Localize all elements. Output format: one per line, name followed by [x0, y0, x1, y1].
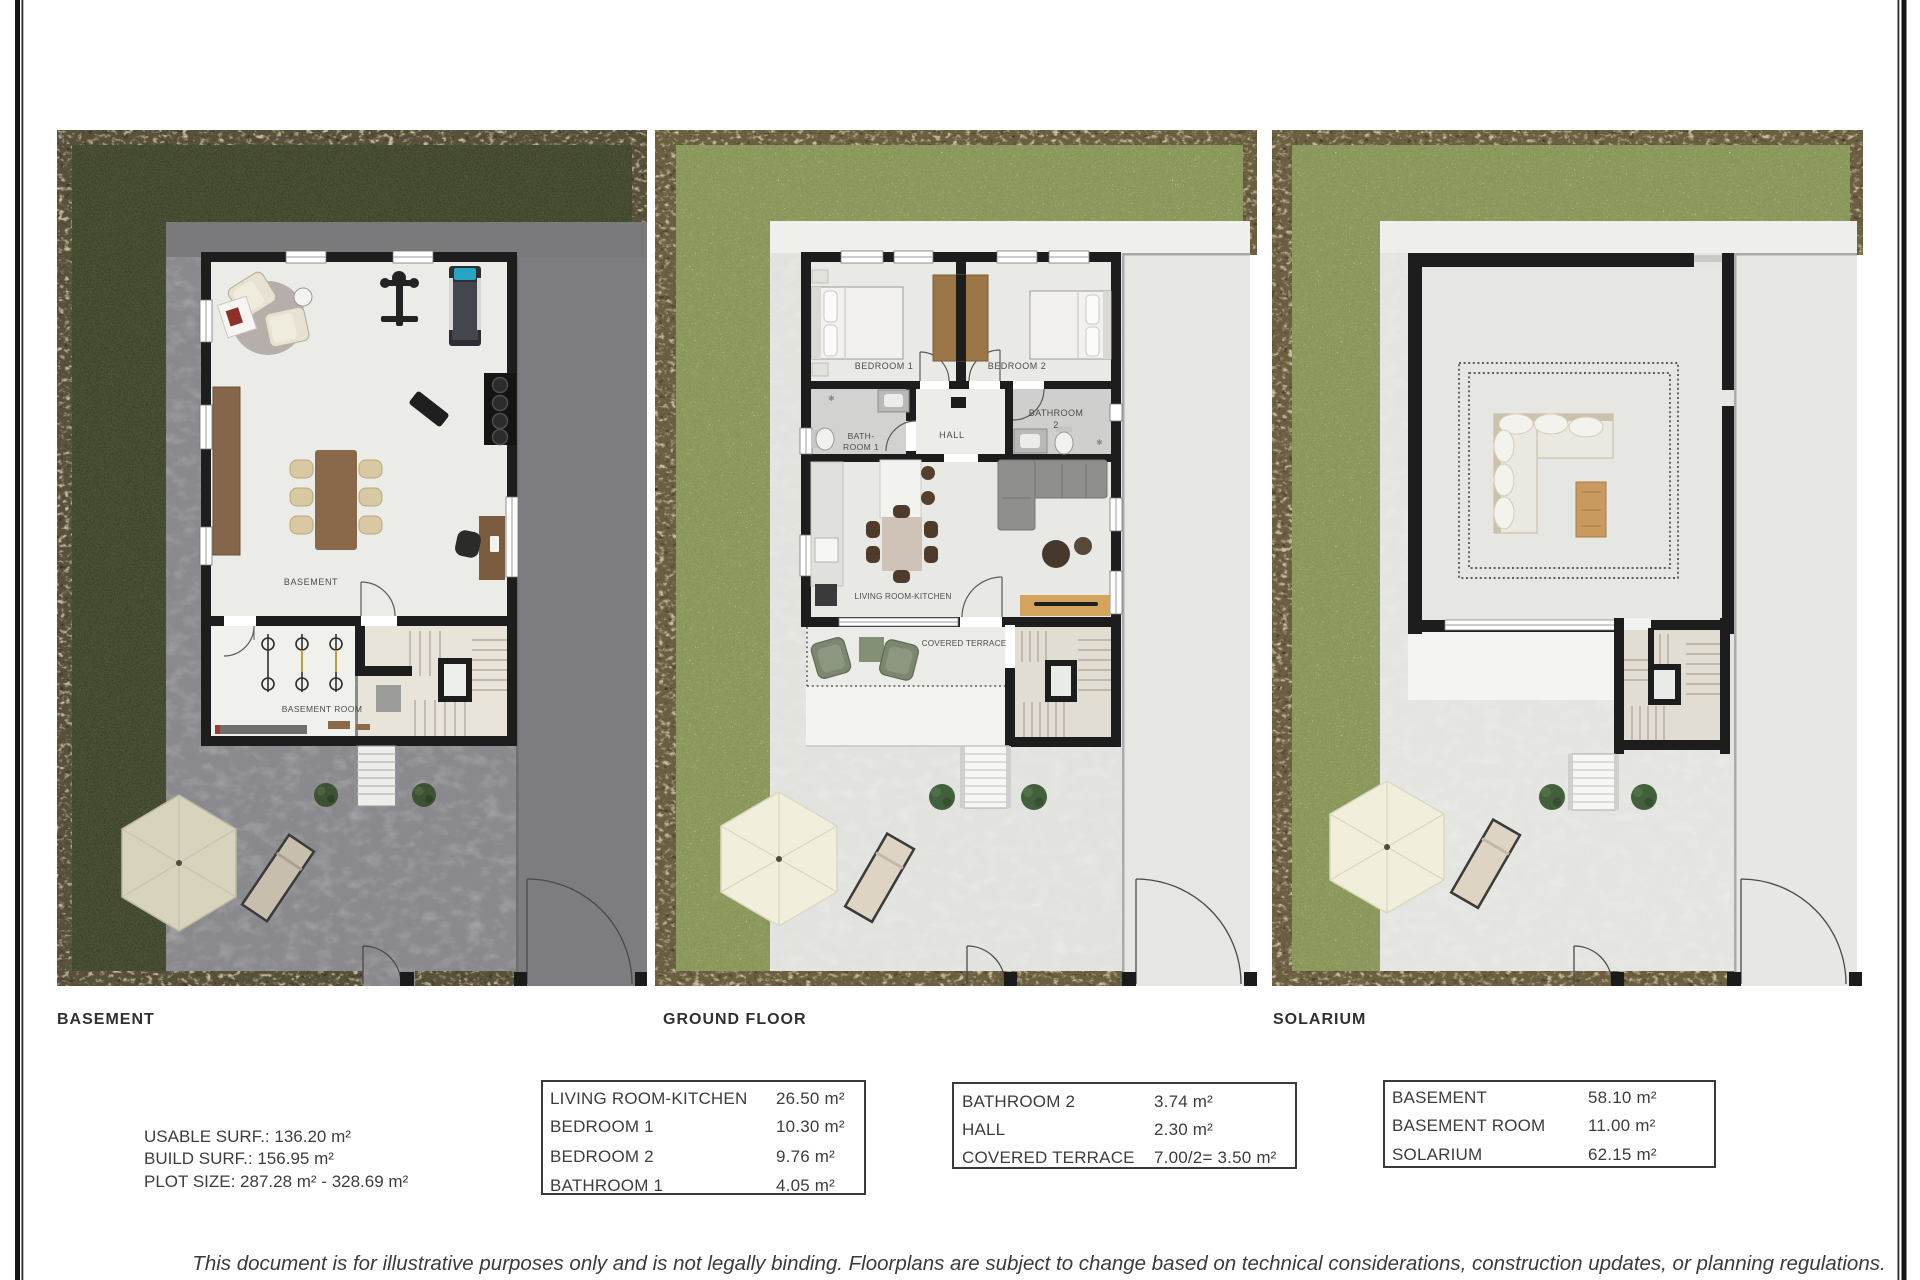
svg-text:7.00/2= 3.50 m²: 7.00/2= 3.50 m² [1154, 1148, 1277, 1167]
svg-text:58.10 m²: 58.10 m² [1588, 1088, 1657, 1107]
svg-text:ROOM 1: ROOM 1 [843, 442, 879, 452]
svg-text:BASEMENT: BASEMENT [1392, 1088, 1487, 1107]
svg-text:BATHROOM 2: BATHROOM 2 [962, 1092, 1075, 1111]
svg-text:BEDROOM 2: BEDROOM 2 [550, 1147, 654, 1166]
svg-text:BASEMENT ROOM: BASEMENT ROOM [282, 704, 363, 714]
svg-text:✱: ✱ [1096, 438, 1103, 447]
svg-text:✱: ✱ [828, 394, 835, 403]
svg-text:PLOT SIZE: 287.28 m² - 328.69: PLOT SIZE: 287.28 m² - 328.69 m² [144, 1172, 409, 1191]
svg-text:26.50 m²: 26.50 m² [776, 1089, 845, 1108]
svg-text:BATHROOM 1: BATHROOM 1 [550, 1176, 663, 1195]
svg-text:HALL: HALL [939, 430, 965, 440]
svg-text:BEDROOM 1: BEDROOM 1 [550, 1117, 654, 1136]
svg-text:LIVING ROOM-KITCHEN: LIVING ROOM-KITCHEN [550, 1089, 747, 1108]
svg-text:SOLARIUM: SOLARIUM [1273, 1011, 1366, 1028]
svg-text:BASEMENT: BASEMENT [284, 577, 338, 587]
svg-text:BASEMENT ROOM: BASEMENT ROOM [1392, 1116, 1545, 1135]
svg-text:62.15 m²: 62.15 m² [1588, 1145, 1657, 1164]
svg-text:BATHROOM: BATHROOM [1029, 408, 1084, 418]
svg-text:3.74 m²: 3.74 m² [1154, 1092, 1213, 1111]
svg-text:BEDROOM 2: BEDROOM 2 [988, 361, 1047, 371]
svg-text:BATH-: BATH- [848, 431, 875, 441]
svg-text:2: 2 [1053, 420, 1058, 430]
svg-text:COVERED TERRACE: COVERED TERRACE [962, 1148, 1135, 1167]
svg-text:LIVING ROOM-KITCHEN: LIVING ROOM-KITCHEN [854, 592, 951, 601]
svg-text:11.00 m²: 11.00 m² [1588, 1116, 1656, 1135]
svg-text:SOLARIUM: SOLARIUM [1392, 1145, 1482, 1164]
svg-text:COVERED TERRACE: COVERED TERRACE [922, 639, 1007, 648]
svg-text:2.30 m²: 2.30 m² [1154, 1120, 1213, 1139]
svg-text:4.05 m²: 4.05 m² [776, 1176, 835, 1195]
svg-text:This document is for illustrat: This document is for illustrative purpos… [192, 1252, 1885, 1275]
svg-text:GROUND FLOOR: GROUND FLOOR [663, 1011, 807, 1028]
svg-text:BASEMENT: BASEMENT [57, 1011, 155, 1028]
svg-text:HALL: HALL [962, 1120, 1005, 1139]
svg-text:USABLE SURF.: 136.20 m²: USABLE SURF.: 136.20 m² [144, 1127, 351, 1146]
svg-text:BUILD SURF.: 156.95 m²: BUILD SURF.: 156.95 m² [144, 1149, 334, 1168]
svg-text:9.76 m²: 9.76 m² [776, 1147, 835, 1166]
svg-text:BEDROOM 1: BEDROOM 1 [855, 361, 914, 371]
svg-text:10.30 m²: 10.30 m² [776, 1117, 845, 1136]
